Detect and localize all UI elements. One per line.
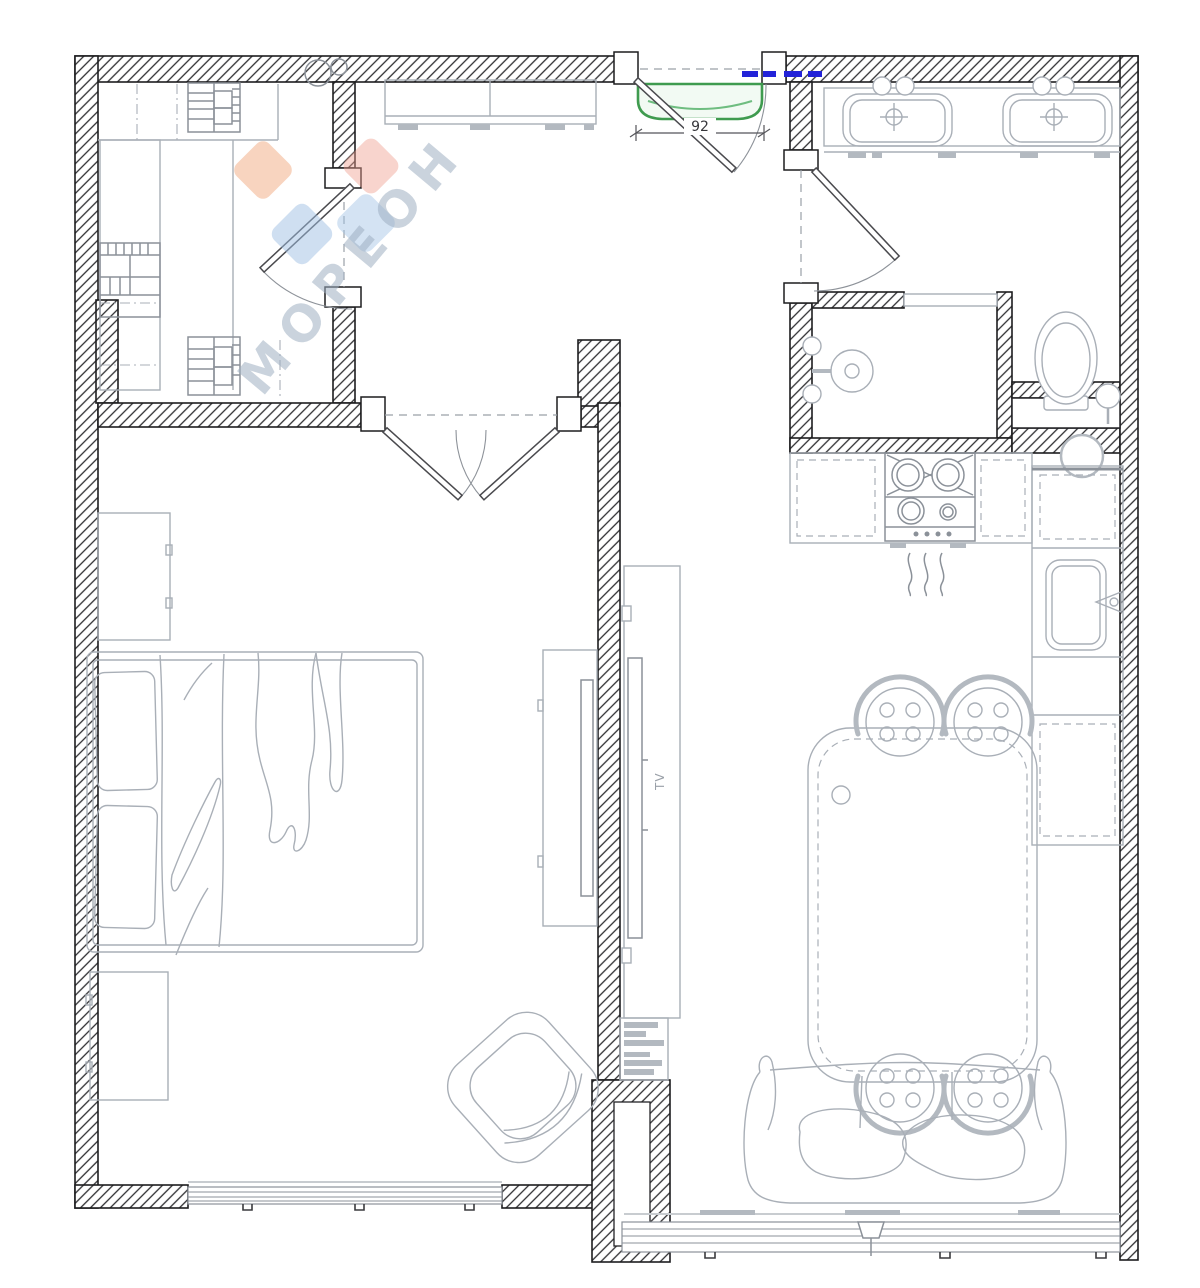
armchair <box>435 1000 610 1175</box>
chair <box>856 677 944 756</box>
gas-stove-icon <box>885 453 975 541</box>
bed <box>87 652 423 955</box>
kitchen-sink-icon <box>1046 560 1121 650</box>
shower-glass-door <box>904 294 997 306</box>
shower <box>803 337 873 403</box>
dining-table <box>808 728 1037 1082</box>
living-room: TV <box>620 566 1120 1258</box>
tv-panel: TV <box>622 566 680 1018</box>
walls <box>75 56 1138 1262</box>
bedroom <box>86 415 611 1210</box>
floor-plan-page: 92 <box>0 0 1200 1288</box>
kitchen-counter-top <box>790 453 1032 596</box>
bookshelf <box>620 1018 668 1080</box>
tv-label: TV <box>653 772 667 791</box>
floor-plan: 92 <box>0 0 1200 1288</box>
boiler-icon <box>1061 435 1103 477</box>
kitchen <box>790 435 1123 1133</box>
bedroom-tv <box>581 680 593 896</box>
hallway <box>385 80 596 130</box>
double-sink-vanity <box>824 77 1120 158</box>
living-window <box>622 1210 1120 1258</box>
dining-chairs <box>856 677 1032 1133</box>
dimension-label: 92 <box>691 119 709 135</box>
toilet <box>1035 312 1120 424</box>
watermark-diamond-orange-1 <box>230 137 295 202</box>
sofa <box>744 1056 1066 1203</box>
heat-marks <box>908 553 943 596</box>
wardrobe-shelf-icon-top <box>188 83 240 132</box>
hall-cabinet <box>385 80 596 130</box>
chair <box>944 677 1032 756</box>
bathroom <box>801 77 1120 424</box>
kitchen-counter-right <box>1032 466 1123 845</box>
bedroom-window <box>188 1182 502 1210</box>
bedroom-double-door <box>383 415 559 500</box>
nightstand-top <box>98 513 172 640</box>
chair <box>856 1054 944 1133</box>
tv-dresser <box>538 650 597 926</box>
living-tv <box>628 658 642 938</box>
bathroom-door <box>801 168 899 291</box>
